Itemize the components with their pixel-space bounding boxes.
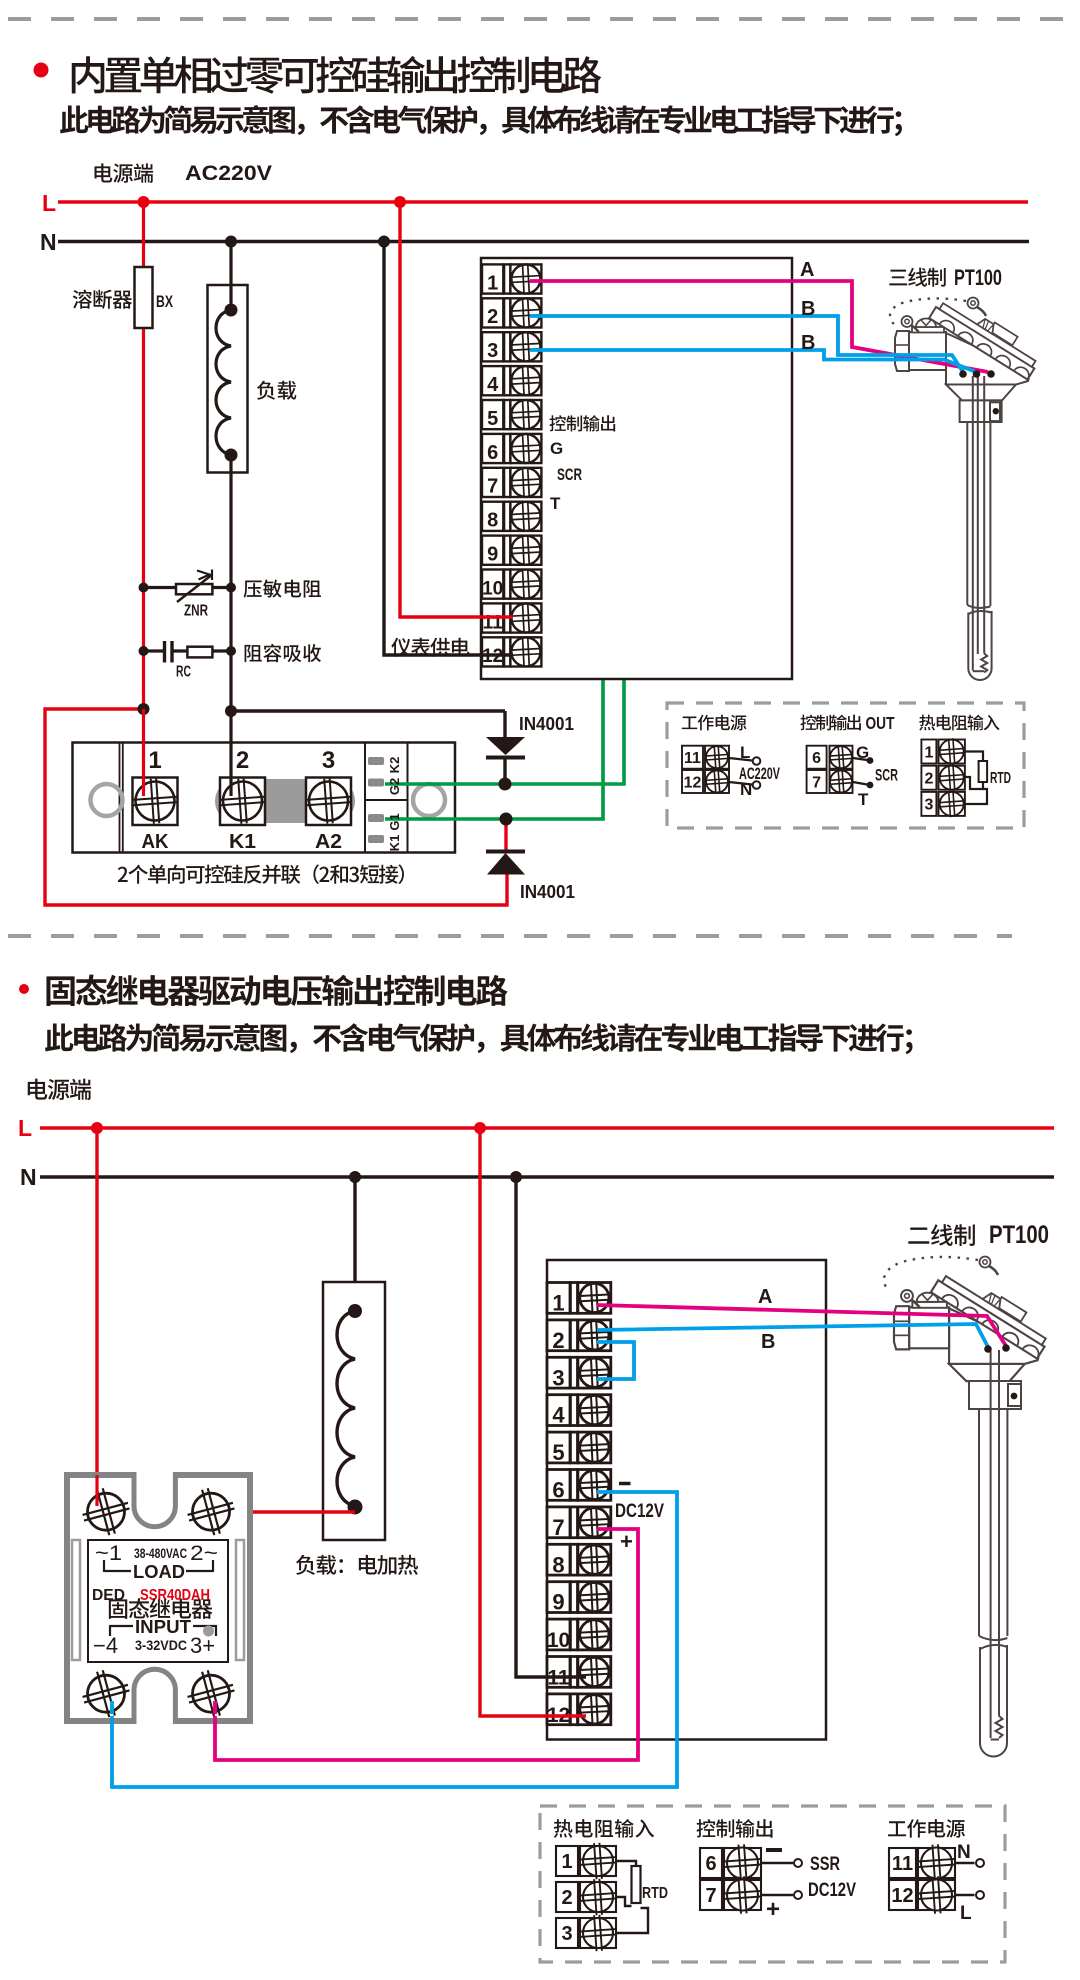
- svg-text:L: L: [740, 743, 750, 762]
- svg-text:2: 2: [487, 306, 498, 328]
- svg-text:8: 8: [552, 1552, 564, 1577]
- svg-text:AK: AK: [142, 831, 170, 853]
- svg-text:11: 11: [684, 750, 701, 767]
- svg-text:L: L: [42, 190, 56, 216]
- svg-text:G1: G1: [387, 813, 402, 830]
- svg-text:PT100: PT100: [954, 265, 1002, 290]
- svg-text:A2: A2: [315, 831, 342, 853]
- svg-text:DC12V: DC12V: [615, 1501, 664, 1522]
- svg-text:A: A: [800, 259, 814, 281]
- svg-text:7: 7: [705, 1885, 716, 1907]
- svg-text:3: 3: [924, 797, 933, 814]
- svg-text:4: 4: [487, 374, 499, 396]
- svg-text:RC: RC: [176, 664, 191, 681]
- svg-text:+: +: [766, 1896, 780, 1923]
- svg-text:9: 9: [487, 544, 498, 566]
- svg-text:7: 7: [812, 774, 821, 791]
- svg-text:K2: K2: [387, 757, 402, 774]
- svg-text:SCR: SCR: [875, 766, 898, 785]
- svg-text:6: 6: [705, 1853, 716, 1875]
- svg-text:PT100: PT100: [989, 1221, 1049, 1249]
- svg-text:3-32VDC: 3-32VDC: [135, 1638, 187, 1653]
- svg-text:N: N: [740, 780, 752, 799]
- svg-text:L: L: [18, 1115, 32, 1141]
- svg-text:G: G: [856, 743, 869, 762]
- svg-text:G2: G2: [387, 778, 402, 795]
- svg-text:3: 3: [322, 747, 335, 774]
- svg-text:B: B: [801, 332, 815, 354]
- svg-text:38-480VAC: 38-480VAC: [134, 1546, 187, 1561]
- svg-text:L: L: [960, 1903, 972, 1924]
- svg-text:N: N: [20, 1164, 37, 1190]
- svg-text:6: 6: [487, 442, 498, 464]
- svg-text:K1: K1: [387, 835, 402, 852]
- svg-text:1: 1: [924, 744, 933, 761]
- svg-text:IN4001: IN4001: [519, 713, 574, 734]
- svg-text:4: 4: [552, 1403, 565, 1428]
- svg-text:SSR: SSR: [810, 1854, 840, 1875]
- svg-text:1: 1: [487, 272, 498, 294]
- svg-text:~1: ~1: [95, 1542, 122, 1565]
- svg-text:3: 3: [487, 340, 498, 362]
- svg-text:T: T: [858, 790, 869, 809]
- svg-text:INPUT: INPUT: [135, 1617, 191, 1637]
- svg-text:3+: 3+: [190, 1633, 215, 1658]
- svg-text:12: 12: [891, 1885, 913, 1907]
- svg-text:RTD: RTD: [990, 770, 1011, 787]
- svg-text:DC12V: DC12V: [808, 1880, 856, 1901]
- svg-text:RTD: RTD: [642, 1885, 668, 1902]
- svg-text:+: +: [620, 1529, 633, 1554]
- svg-text:DED: DED: [92, 1587, 125, 1604]
- svg-text:5: 5: [487, 408, 498, 430]
- svg-text:11: 11: [892, 1853, 913, 1875]
- svg-text:8: 8: [487, 510, 498, 532]
- svg-text:3: 3: [552, 1365, 564, 1390]
- svg-text:6: 6: [552, 1478, 564, 1503]
- svg-text:12: 12: [684, 774, 702, 791]
- svg-text:−4: −4: [93, 1633, 118, 1658]
- svg-text:IN4001: IN4001: [520, 881, 575, 902]
- svg-text:ZNR: ZNR: [184, 603, 208, 620]
- svg-text:1: 1: [561, 1851, 572, 1873]
- svg-text:1: 1: [148, 747, 161, 774]
- svg-text:1: 1: [552, 1291, 564, 1316]
- svg-text:OUT: OUT: [866, 713, 895, 733]
- svg-text:3: 3: [561, 1923, 572, 1945]
- svg-text:BX: BX: [156, 292, 173, 311]
- svg-text:9: 9: [552, 1590, 564, 1615]
- svg-text:K1: K1: [229, 831, 256, 853]
- svg-text:SCR: SCR: [557, 465, 582, 484]
- svg-text:10: 10: [482, 578, 503, 599]
- svg-text:5: 5: [552, 1440, 564, 1465]
- svg-text:LOAD: LOAD: [133, 1562, 185, 1582]
- svg-text:N: N: [957, 1842, 971, 1863]
- svg-text:T: T: [550, 494, 561, 513]
- svg-text:6: 6: [812, 750, 821, 767]
- svg-text:2: 2: [561, 1887, 572, 1909]
- svg-text:2: 2: [236, 747, 249, 774]
- svg-text:G: G: [550, 439, 563, 458]
- svg-text:7: 7: [552, 1515, 564, 1540]
- svg-text:2: 2: [552, 1328, 564, 1353]
- svg-text:A: A: [758, 1286, 772, 1308]
- svg-text:7: 7: [487, 476, 498, 498]
- svg-text:10: 10: [547, 1629, 570, 1652]
- svg-text:AC220V: AC220V: [185, 162, 272, 185]
- svg-text:2: 2: [924, 770, 933, 787]
- svg-text:B: B: [761, 1331, 775, 1353]
- svg-text:N: N: [40, 229, 57, 255]
- svg-text:B: B: [801, 298, 815, 320]
